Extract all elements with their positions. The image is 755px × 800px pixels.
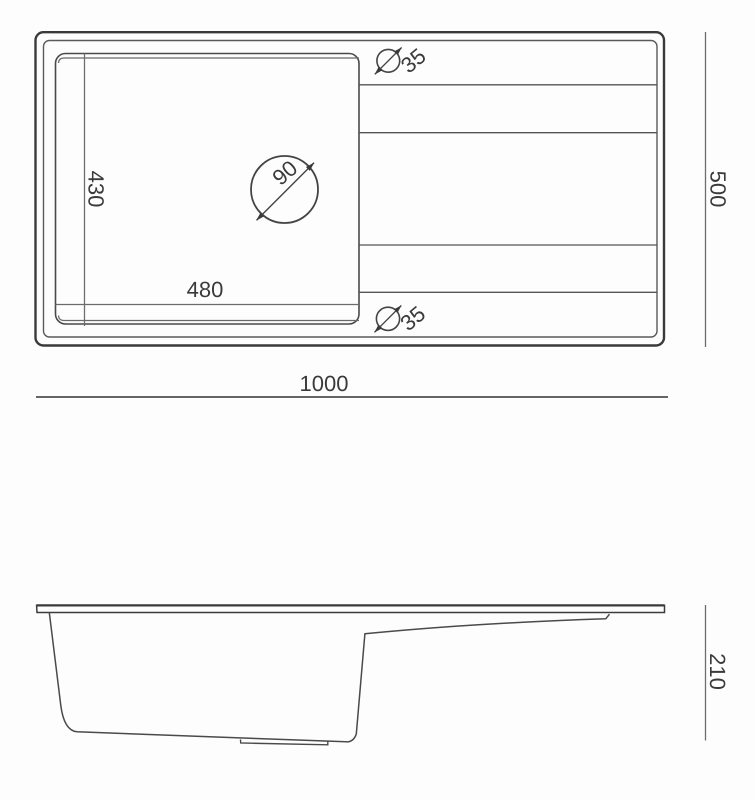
svg-text:210: 210 — [705, 653, 730, 690]
svg-text:480: 480 — [187, 277, 224, 302]
svg-text:500: 500 — [706, 171, 731, 208]
svg-text:430: 430 — [84, 171, 109, 208]
svg-text:90: 90 — [267, 155, 302, 190]
svg-text:1000: 1000 — [300, 371, 349, 396]
